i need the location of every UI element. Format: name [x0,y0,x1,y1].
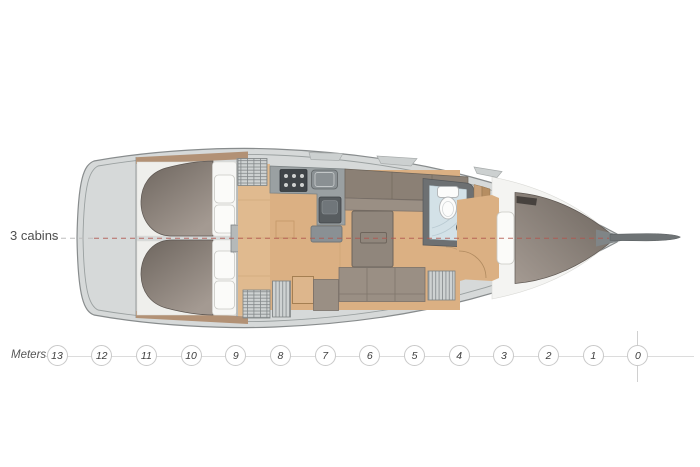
skylight [309,153,343,161]
louvered-locker-left [273,281,291,317]
nav-table [293,277,314,304]
meter-mark-8: 8 [270,345,291,366]
pillow [215,251,235,279]
meter-mark-11: 11 [136,345,157,366]
meter-mark-13: 13 [47,345,68,366]
pillow [215,175,235,203]
settee-bottom [339,268,425,302]
nav-seat [314,280,339,311]
meter-mark-5: 5 [404,345,425,366]
bowsprit [610,234,681,241]
meter-mark-4: 4 [449,345,470,366]
meters-label: Meters [11,349,46,361]
meter-mark-1: 1 [583,345,604,366]
cabins-count-label: 3 cabins [10,228,58,243]
meter-mark-10: 10 [181,345,202,366]
meter-mark-2: 2 [538,345,559,366]
louvered-locker-right [428,271,455,300]
oven-door [322,201,338,215]
yacht-layout-plan: 3 cabins Meters 131211109876543210 [0,0,700,467]
yacht-plan-drawing [0,0,700,467]
meter-mark-7: 7 [315,345,336,366]
companionway-steps-top [238,159,267,186]
stove-icon [280,170,307,192]
skylight [474,167,502,178]
toilet-tank [438,187,459,198]
pillow [215,281,235,309]
companionway-steps-bottom [243,290,270,318]
toilet-icon [440,197,457,219]
mast-step [311,226,342,242]
